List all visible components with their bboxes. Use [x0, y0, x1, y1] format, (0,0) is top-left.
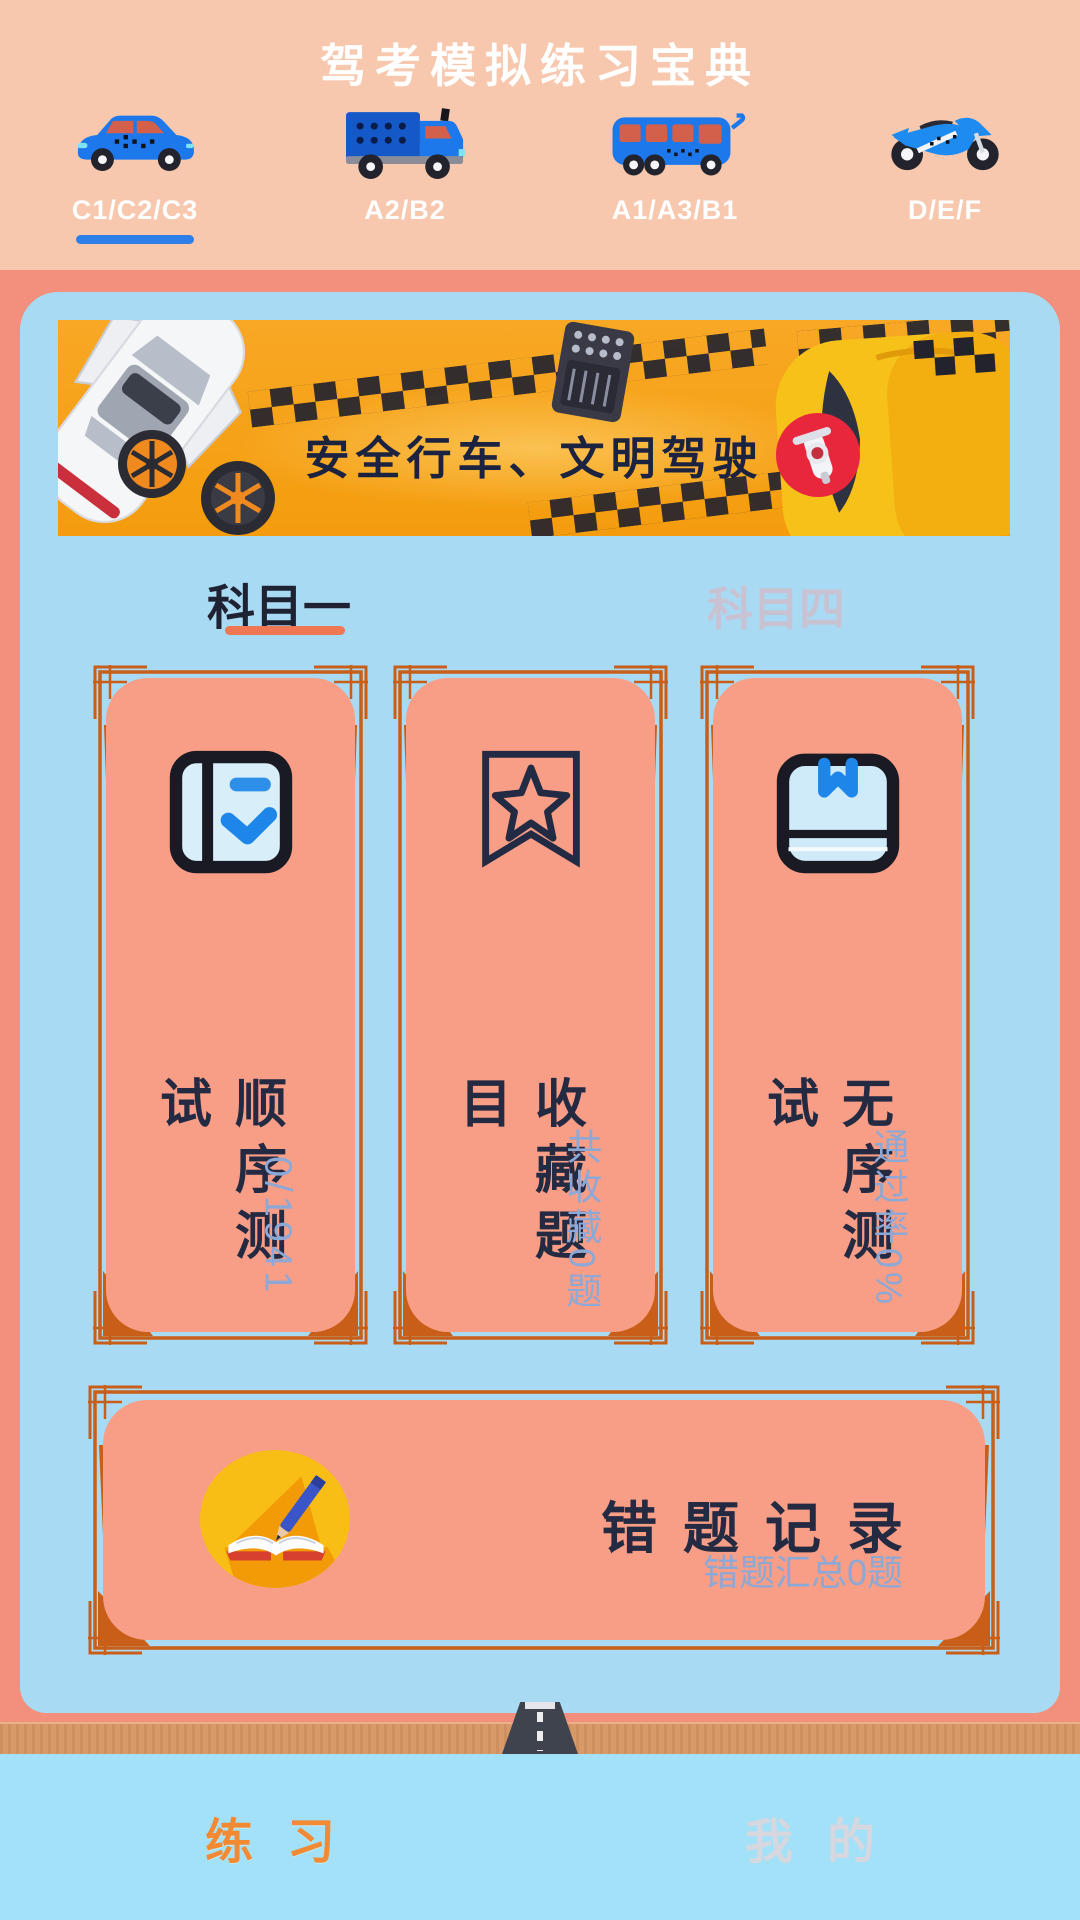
app-screen: 驾考模拟练习宝典 — [0, 0, 1080, 1920]
main-panel: 安全行车、文明驾驶 科目一 科目四 顺序测试 0/1941 — [20, 292, 1060, 1713]
card-subtitle: 错题汇总0题 — [703, 1544, 903, 1596]
category-tab-def[interactable]: D/E/F — [810, 98, 1080, 244]
category-label: A2/B2 — [364, 195, 446, 226]
card-surface: 无序测试 通过率0% — [713, 678, 962, 1332]
card-subtitle: 0/1941 — [255, 1156, 298, 1296]
bus-icon — [595, 98, 755, 191]
card-random-test[interactable]: 无序测试 通过率0% — [700, 665, 975, 1345]
nav-item-practice[interactable]: 练习 — [0, 1754, 540, 1920]
motorcycle-icon — [865, 98, 1025, 191]
car-icon — [55, 98, 215, 191]
category-label: A1/A3/B1 — [612, 195, 739, 226]
active-category-underline — [76, 235, 194, 244]
category-label: C1/C2/C3 — [72, 195, 199, 226]
card-subtitle: 通过率0% — [862, 1128, 914, 1308]
page-title: 驾考模拟练习宝典 — [0, 30, 1080, 96]
card-surface: 顺序测试 0/1941 — [106, 678, 355, 1332]
card-favorite-questions[interactable]: 收藏题目 共收藏0题 — [393, 665, 668, 1345]
notebook-check-icon — [165, 738, 297, 886]
nav-label: 练习 — [205, 1802, 369, 1872]
card-surface: 错题记录 错题汇总0题 — [103, 1400, 985, 1640]
category-tab-a1a3b1[interactable]: A1/A3/B1 — [540, 98, 810, 244]
nav-label: 我的 — [745, 1802, 909, 1872]
active-tab-underline — [225, 626, 345, 635]
promo-banner[interactable]: 安全行车、文明驾驶 — [58, 320, 1010, 536]
category-tab-a2b2[interactable]: A2/B2 — [270, 98, 540, 244]
card-surface: 收藏题目 共收藏0题 — [406, 678, 655, 1332]
banner-slogan: 安全行车、文明驾驶 — [58, 422, 1010, 487]
bookmark-star-icon — [465, 738, 597, 886]
bottom-navigation: 练习 我的 — [0, 1754, 1080, 1920]
card-wrong-question-record[interactable]: 错题记录 错题汇总0题 — [88, 1385, 1000, 1655]
card-sequential-test[interactable]: 顺序测试 0/1941 — [93, 665, 368, 1345]
truck-icon — [325, 98, 485, 191]
category-tab-c1c2c3[interactable]: C1/C2/C3 — [0, 98, 270, 244]
book-pen-icon — [191, 1446, 363, 1598]
book-ribbon-icon — [772, 738, 904, 886]
nav-item-mine[interactable]: 我的 — [540, 1754, 1080, 1920]
card-subtitle: 共收藏0题 — [555, 1128, 607, 1312]
header: 驾考模拟练习宝典 — [0, 0, 1080, 270]
category-label: D/E/F — [908, 195, 982, 226]
tab-subject-four[interactable]: 科目四 — [707, 573, 845, 639]
vehicle-category-tabs: C1/C2/C3 — [0, 98, 1080, 244]
